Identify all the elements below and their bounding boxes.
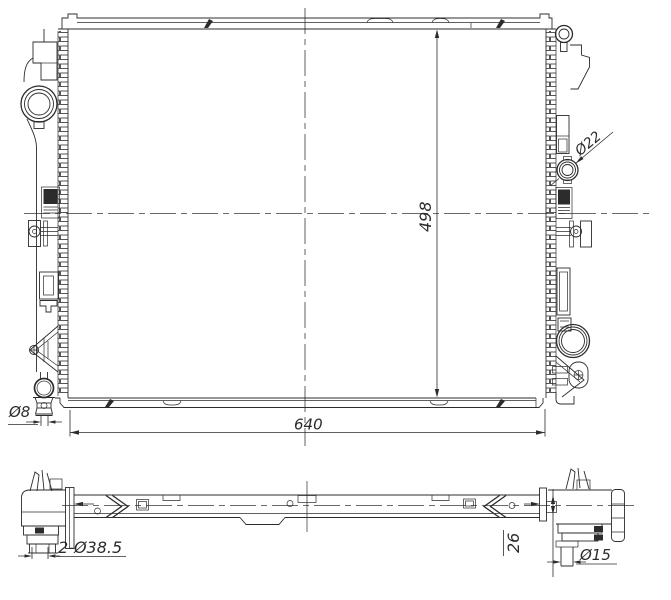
clip-icon — [204, 19, 213, 28]
dim-drain-label: Ø8 — [8, 403, 30, 421]
tank-foot — [556, 392, 574, 404]
mount-fastener-left — [29, 221, 59, 247]
dimension-offset: 26 — [504, 489, 556, 577]
radiator-drawing: 498 640 Ø8 Ø22 — [0, 0, 671, 600]
left-tank — [21, 29, 60, 416]
inlet-port — [557, 157, 578, 184]
outlet-port — [557, 325, 590, 358]
front-view: 498 640 Ø8 Ø22 — [8, 8, 652, 446]
slot-upper-right — [557, 116, 570, 154]
label-plate — [42, 187, 60, 218]
right-tank — [553, 26, 592, 405]
upper-bracket-right — [570, 45, 590, 89]
dim-port-label: Ø22 — [571, 128, 604, 159]
dim-width-label: 640 — [294, 416, 323, 434]
bottom-bar — [66, 488, 557, 549]
top-tank-strip — [58, 14, 556, 29]
clip-icon — [496, 19, 505, 28]
dim-offset-label: 26 — [504, 533, 523, 553]
dim-inlet-label: 2-Ø38.5 — [58, 538, 122, 557]
upper-bracket — [33, 42, 57, 80]
filler-neck — [21, 86, 57, 122]
dimension-inlet: 2-Ø38.5 — [18, 538, 126, 559]
chevron-right-icon — [106, 496, 128, 518]
a-frame-bracket-right — [553, 356, 589, 397]
dimension-outlet: Ø15 — [547, 546, 617, 564]
a-frame-bracket-left — [30, 326, 59, 372]
dimension-drain: Ø8 — [8, 403, 62, 426]
mount-pin — [556, 26, 573, 52]
fin-band-right — [546, 31, 556, 396]
dimension-width: 640 — [70, 409, 545, 437]
drain-plug — [33, 372, 60, 416]
slot-left — [40, 272, 59, 312]
label-plate-right — [556, 188, 572, 219]
chevron-left-icon — [484, 496, 506, 518]
mount-fastener-right — [556, 221, 592, 247]
dim-height-label: 498 — [416, 201, 435, 232]
bottom-view: 2-Ø38.5 26 Ø15 — [18, 468, 638, 577]
dim-outlet-label: Ø15 — [579, 546, 611, 564]
slot-lower-right — [557, 268, 571, 331]
bottom-tank-strip — [60, 398, 543, 408]
